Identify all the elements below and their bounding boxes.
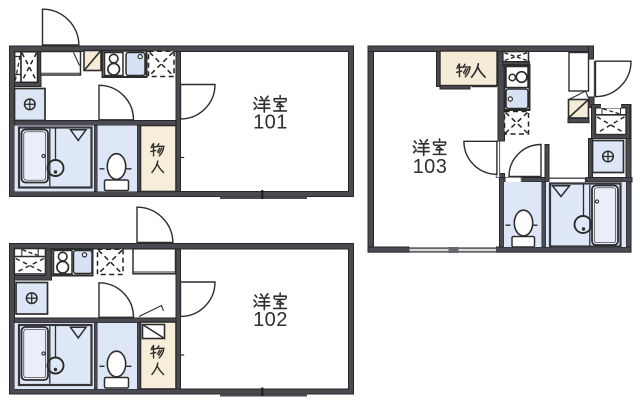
svg-text:103: 103 (413, 156, 448, 178)
svg-text:102: 102 (253, 309, 288, 331)
svg-text:101: 101 (253, 111, 288, 133)
